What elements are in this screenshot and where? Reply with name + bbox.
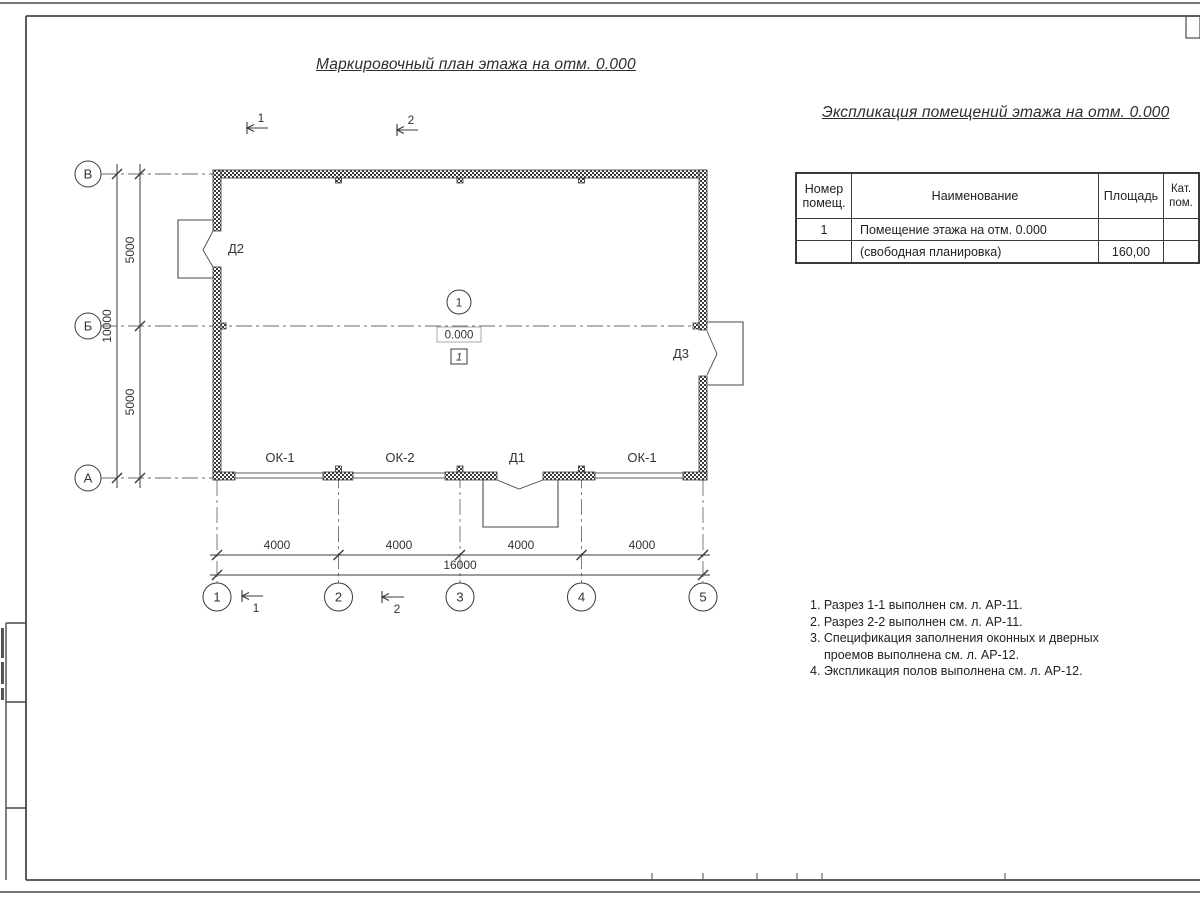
cell-room-area: 160,00 [1099,241,1164,264]
header-area: Площадь [1099,173,1164,219]
floor-number: 1 [456,352,462,364]
section-label-1-top: 1 [258,111,265,125]
dim-label-5000-bottom: 5000 [123,388,137,415]
header-category: Кат. пом. [1164,173,1200,219]
wall-bottom-pier-1 [213,472,235,480]
wall-right-lower [699,376,707,480]
dim-label-4000-4: 4000 [629,538,656,552]
axis-label-4: 4 [578,590,585,605]
window-label-ok1-right: ОК-1 [627,450,656,465]
axis-label-2: 2 [335,590,342,605]
header-name: Наименование [852,173,1099,219]
cell-room-category [1164,219,1200,241]
wall-left-lower [213,267,221,480]
cell-room-name: Помещение этажа на отм. 0.000 [852,219,1099,241]
section-marks [242,122,418,603]
cell-room-category [1164,241,1200,264]
axis-label-b: Б [84,319,93,334]
window-label-ok2: ОК-2 [385,450,414,465]
explication-table: Номер помещ. Наименование Площадь Кат. п… [795,172,1200,264]
door-label-d1: Д1 [509,450,525,465]
door-label-d3: Д3 [673,346,689,361]
room-number: 1 [456,296,463,310]
walls [213,170,707,480]
table-header-row: Номер помещ. Наименование Площадь Кат. п… [796,173,1199,219]
drawing-sheet: 5000 5000 10000 4000 4000 4000 4000 1600… [0,0,1200,900]
wall-bottom-pier-5 [683,472,707,480]
wall-left-upper [213,170,221,231]
note-line: 4. Экспликация полов выполнена см. л. АР… [810,663,1099,680]
door-swing-d2 [203,231,213,267]
dim-label-10000: 10000 [100,309,114,343]
axis-lines [101,174,703,583]
dim-label-4000-1: 4000 [264,538,291,552]
window-ok1-left [235,473,323,478]
column-marks [221,178,699,472]
axis-label-1: 1 [213,590,220,605]
window-ok1-right [595,473,683,478]
wall-bottom-pier-2 [323,472,353,480]
note-line: проемов выполнена см. л. АР-12. [810,647,1099,664]
axis-label-3: 3 [456,590,463,605]
note-line: 3. Спецификация заполнения оконных и две… [810,630,1099,647]
wall-bottom-pier-4 [543,472,595,480]
axis-label-5: 5 [699,590,706,605]
door-swing-d3 [707,331,717,375]
cell-room-area [1099,219,1164,241]
window-label-ok1-left: ОК-1 [265,450,294,465]
door-label-d2: Д2 [228,241,244,256]
header-category-line1: Кат. [1171,183,1191,195]
doors [178,220,743,527]
table-row: (свободная планировка) 160,00 [796,241,1199,264]
corner-format-box [1186,16,1200,38]
porch-bottom [483,480,558,527]
dim-label-4000-2: 4000 [386,538,413,552]
section-label-1-bottom: 1 [253,601,260,615]
explication-title: Экспликация помещений этажа на отм. 0.00… [822,104,1169,122]
section-label-2-top: 2 [408,113,415,127]
axis-label-a: А [84,471,93,486]
note-line: 1. Разрез 1-1 выполнен см. л. АР-11. [810,597,1099,614]
note-line: 2. Разрез 2-2 выполнен см. л. АР-11. [810,614,1099,631]
vestibule-left [178,220,213,278]
notes-list: 1. Разрез 1-1 выполнен см. л. АР-11. 2. … [810,597,1099,680]
dim-label-5000-top: 5000 [123,236,137,263]
elevation-value: 0.000 [445,330,474,342]
dim-label-16000: 16000 [443,558,477,572]
cell-room-number [796,241,852,264]
wall-bottom-pier-3 [445,472,497,480]
section-label-2-bottom: 2 [394,602,401,616]
axis-label-v: В [84,167,93,182]
stamp-illegible-text [1,628,4,700]
header-room-number: Номер помещ. [796,173,852,219]
dim-label-4000-3: 4000 [508,538,535,552]
header-room-number-line2: помещ. [802,196,845,210]
sheet-frame [0,3,1200,892]
wall-right-upper [699,170,707,330]
vestibule-right [707,322,743,385]
header-room-number-line1: Номер [805,182,843,196]
cell-room-name: (свободная планировка) [852,241,1099,264]
plan-title: Маркировочный план этажа на отм. 0.000 [316,56,636,74]
wall-top [213,170,707,178]
window-ok2 [353,473,445,478]
header-category-line2: пом. [1169,197,1193,209]
plan-drawing: 5000 5000 10000 4000 4000 4000 4000 1600… [0,0,1200,900]
table-row: 1 Помещение этажа на отм. 0.000 [796,219,1199,241]
title-block-stubs [652,873,1005,880]
door-swing-d1 [497,480,543,489]
cell-room-number: 1 [796,219,852,241]
